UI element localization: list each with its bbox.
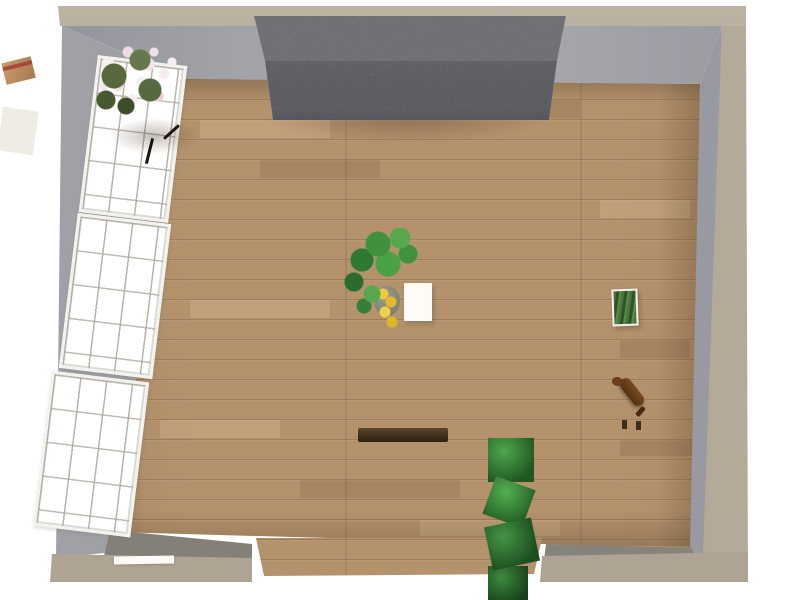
threshold-strip: [114, 555, 174, 564]
magazine: [0, 107, 39, 156]
flower-bouquet: [92, 42, 196, 134]
window-sill: [60, 210, 88, 219]
magazine: [0, 47, 50, 114]
potted-plant: [488, 392, 673, 562]
fireplace: [303, 92, 507, 136]
armchair-2: [197, 335, 309, 457]
window-sill: [66, 198, 92, 207]
window-3: [33, 371, 149, 538]
window-sill: [30, 526, 58, 535]
window-sill: [50, 356, 76, 365]
window-sill: [44, 368, 72, 377]
fireplace-slot: [322, 115, 490, 121]
fireplace-flame: [322, 100, 490, 113]
plant-pot: [488, 392, 552, 438]
dog-figurine-head: [612, 377, 622, 386]
planter-box: [611, 289, 638, 327]
table-plant: [344, 228, 436, 316]
wall-art: [705, 242, 729, 394]
floorplan-scene: [0, 0, 800, 600]
bird-figurine: [0, 167, 15, 182]
window-2: [59, 213, 171, 379]
photo-frame: [0, 37, 20, 51]
armchair-1: [197, 211, 309, 333]
